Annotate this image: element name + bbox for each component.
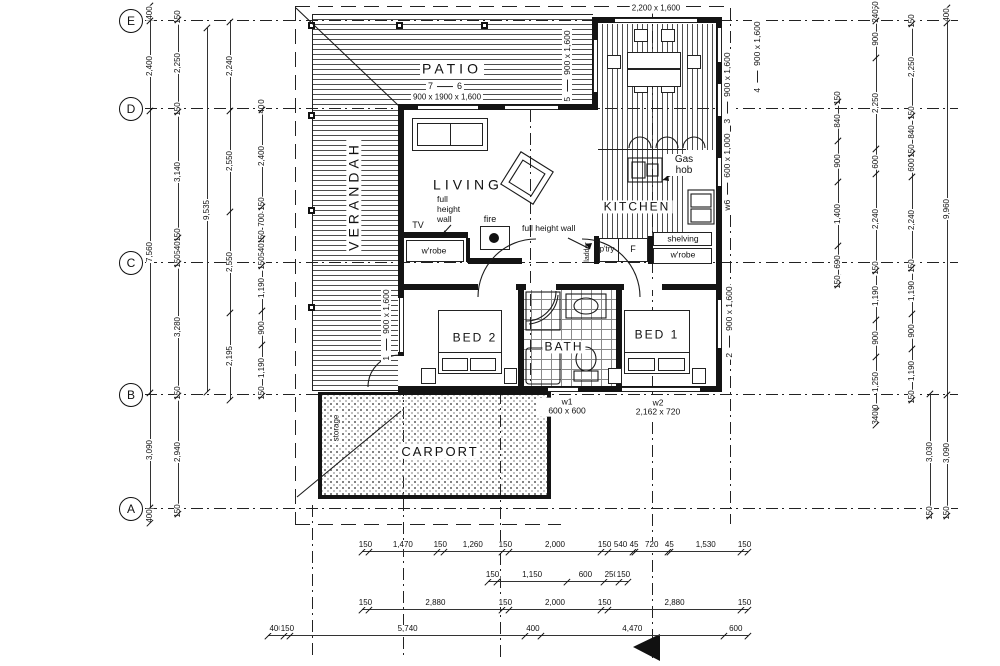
dim-segment: 2,195 (220, 313, 240, 400)
dim-label: 1,190 (908, 280, 916, 302)
dim-label: 2,880 (424, 599, 446, 607)
dining-chair (634, 29, 648, 42)
patio-door-no-6: 6 (457, 82, 462, 92)
window-2-glazing (717, 300, 722, 348)
dim-label: 7,560 (146, 241, 154, 263)
bed2-blanket-line (438, 352, 502, 353)
sink-bench (688, 190, 714, 224)
dim-label: 150 (258, 385, 266, 400)
dim-segment: 150 (741, 596, 748, 610)
dim-segment: 1,530 (670, 538, 741, 552)
window-top-glazing (615, 18, 697, 23)
dim-label: 2,400 (146, 55, 154, 77)
patio-door-glazing (418, 105, 478, 110)
patio-label: PATIO (420, 61, 484, 76)
dim-label: 540 (613, 541, 628, 549)
dim-label: 700 (258, 213, 266, 228)
bed2-pillow (442, 358, 468, 371)
ref-line-v4 (530, 110, 531, 390)
dim-column-right-3: 1502,2501508401506002,2401501,1909001,19… (902, 18, 922, 400)
dim-label: 1,190 (908, 360, 916, 382)
dim-segment: 1,260 (444, 538, 502, 552)
dim-segment: 2,240 (220, 22, 240, 111)
dim-segment: 600 (567, 568, 604, 582)
window-w6-size: 600 x 1,000 (722, 133, 732, 177)
dim-label: 900 (834, 154, 842, 169)
bath-door-opening (526, 284, 556, 290)
patio-door-no-7: 7 (428, 82, 433, 92)
grid-label-B: B (127, 388, 135, 402)
dim-label: 600 (908, 158, 916, 173)
grid-line-E (145, 20, 958, 21)
dim-segment: 2,240 (866, 174, 886, 265)
deck-post (308, 304, 315, 311)
dim-segment: 2,250 (168, 20, 188, 106)
dim-label: 720 (644, 541, 659, 549)
sink-bowl-2 (691, 209, 711, 222)
dim-label: 2,250 (174, 52, 182, 74)
dining-chair (607, 55, 621, 69)
dim-label: 900 (258, 320, 266, 335)
label-dash (437, 86, 453, 87)
dim-label: 150 (737, 599, 752, 607)
window-north-glazing (505, 105, 558, 110)
label-dash (386, 339, 387, 351)
grid-label-A: A (127, 502, 135, 516)
window-4-size: 900 x 1,600 (752, 21, 762, 65)
dim-label: 600 (872, 154, 880, 169)
dim-segment: 3,090 (140, 393, 160, 508)
dim-segment: 3,140 (168, 112, 188, 232)
window-w2-label: w2 2,162 x 720 (621, 399, 695, 418)
wall-bedrooms-north (398, 284, 722, 290)
dim-label: 3,140 (174, 161, 182, 183)
dim-label: 2,240 (226, 55, 234, 77)
dim-segment: 7,560 (140, 111, 160, 393)
entry-door-opening (398, 356, 404, 386)
dim-column-left-5: 150402,4001507001505401501,1909001,19015… (252, 103, 272, 396)
full-height-wall-left-label: full height wall (437, 195, 471, 224)
grid-line-A (145, 508, 958, 509)
window-1-number: 1 (381, 356, 391, 361)
window-w1-glazing (548, 387, 578, 392)
window-5-label: 5900 x 1,600 (562, 28, 572, 103)
dim-segment: 150 (168, 508, 188, 514)
window-3-number: 3 (722, 119, 732, 124)
dim-segment: 150 (502, 538, 509, 552)
carport-label: CARPORT (399, 445, 480, 459)
bed2-label: BED 2 (453, 331, 498, 344)
window-1-label: 1900 x 1,600 (381, 287, 391, 362)
dim-label: 1,190 (872, 285, 880, 307)
dim-label: 900 (908, 324, 916, 339)
dim-segment: 2,400 (140, 21, 160, 111)
dim-label: 400 (525, 625, 540, 633)
dim-segment: 2,550 (220, 111, 240, 212)
dim-label: 400 (146, 508, 154, 523)
window-5-number: 5 (562, 97, 572, 102)
dim-label: 2,880 (664, 599, 686, 607)
dim-label: 150 (174, 503, 182, 518)
dim-segment: 150 (362, 538, 369, 552)
dining-table-top (627, 52, 681, 69)
dim-label: 150 (737, 541, 752, 549)
dining-floor (598, 24, 716, 150)
fireplace-box (480, 226, 510, 250)
dim-column-right-2: 1502409002,2506002,2401501,1909001,25090… (866, 5, 886, 425)
dim-segment: 1,190 (866, 271, 886, 320)
dim-segment: 1,190 (902, 349, 922, 395)
dim-segment: 2,000 (509, 596, 601, 610)
kitchen-label: KITCHEN (602, 200, 673, 213)
dim-segment: 3,280 (168, 264, 188, 390)
bed2-side-table (421, 368, 436, 384)
bed1-pillow (658, 358, 685, 371)
sink-bowl-1 (691, 194, 711, 207)
dim-segment: 150 (601, 538, 608, 552)
floor-plan-canvas: E D C B A (0, 0, 1000, 666)
dim-label: 9,960 (943, 198, 951, 220)
dim-segment: 2,550 (220, 212, 240, 313)
dim-label: 150 (834, 274, 842, 289)
grid-label-D: D (127, 102, 136, 116)
dim-segment: 3,090 (937, 395, 957, 510)
dim-label: 1,150 (521, 571, 543, 579)
dim-row-bottom-2: 1501,150600250150 (488, 568, 628, 582)
dim-label: 2,250 (872, 92, 880, 114)
bath-label: BATH (542, 340, 585, 353)
dim-segment: 4,470 (541, 622, 723, 636)
dim-label: 3,090 (146, 439, 154, 461)
label-dash (567, 80, 568, 92)
dim-segment: 150 (741, 538, 748, 552)
dim-segment: 150 (488, 568, 497, 582)
dim-label: 3,280 (174, 316, 182, 338)
dim-label: 5,740 (397, 625, 419, 633)
dim-segment: 2,880 (608, 596, 741, 610)
dim-segment: 2,250 (866, 58, 886, 150)
dim-column-left-1: 4002,4007,5603,090400 (140, 6, 160, 523)
wall-tv-full-height (404, 232, 468, 238)
dim-label: 1,250 (872, 371, 880, 393)
dim-segment: 600 (866, 149, 886, 173)
window-3-size: 900 x 1,600 (722, 52, 732, 96)
roof-outline-left (295, 6, 296, 525)
dim-column-left-3: 9,535 (197, 28, 217, 392)
dim-label: 2,940 (174, 441, 182, 463)
window-5-size: 900 x 1,600 (562, 30, 572, 74)
window-w6-label: w6600 x 1,000 (722, 131, 732, 212)
dim-column-left-2: 1502,2501503,1401505401503,2801502,94015… (168, 14, 188, 514)
dim-segment: 400 (525, 622, 541, 636)
dim-label: 2,550 (226, 251, 234, 273)
window-w1-label: w1 600 x 600 (537, 398, 597, 417)
window-w1-size: 600 x 600 (548, 406, 585, 416)
window-w2-glazing (622, 387, 700, 392)
bed2-side-table (504, 368, 517, 384)
window-w6-number: w6 (722, 200, 732, 211)
dim-label: 600 (578, 571, 593, 579)
bed1-pillow (628, 358, 655, 371)
dim-label: 1,530 (695, 541, 717, 549)
dim-label: 2,250 (908, 56, 916, 78)
dim-label: 2,400 (258, 145, 266, 167)
dim-segment: 9,535 (197, 28, 217, 392)
dim-label: 690 (834, 255, 842, 270)
sofa-divider (450, 123, 451, 146)
dim-label: 340 (872, 410, 880, 425)
kitchen-bench-front (598, 149, 686, 150)
dim-label: 3,030 (926, 441, 934, 463)
dim-segment: 1,470 (369, 538, 437, 552)
dim-segment: 1,190 (252, 266, 272, 311)
window-4-number: 4 (752, 88, 762, 93)
dim-row-bottom-1: 1501,4701501,2601502,00015054045720451,5… (362, 538, 748, 552)
dim-label: 150 (926, 505, 934, 520)
grid-label-C: C (127, 256, 136, 270)
label-dash (757, 71, 758, 83)
living-label: LIVING (433, 177, 503, 192)
dim-label: 2,000 (544, 541, 566, 549)
dim-segment: 2,400 (252, 110, 272, 201)
label-dash (729, 336, 730, 348)
dim-segment: 9,960 (937, 23, 957, 395)
wrobe-right-label: w'robe (671, 250, 696, 259)
window-5-glazing (593, 40, 598, 92)
dim-label: 840 (834, 114, 842, 129)
bed2-door-opening (478, 284, 516, 290)
north-arrow-icon (633, 634, 660, 661)
patio-door-size-label: 900 x 1900 x 1,600 (411, 94, 483, 103)
fridge-label: F (630, 245, 636, 255)
dim-label: 150 (943, 506, 951, 521)
dining-table-bottom (627, 69, 681, 87)
dim-label: 2,195 (226, 345, 234, 367)
label-dash (727, 102, 728, 114)
window-1-size: 900 x 1,600 (381, 289, 391, 333)
dim-segment: 600 (724, 622, 748, 636)
shelving-label: shelving (667, 234, 698, 243)
patio-door-numbers: 7 6 (426, 82, 464, 92)
dim-label: 150 (616, 571, 631, 579)
dim-label: 2,550 (226, 150, 234, 172)
dim-label: 2,240 (908, 209, 916, 231)
dim-label: 9,535 (203, 199, 211, 221)
dim-segment: 150 (601, 596, 608, 610)
dim-segment: 150 (902, 394, 922, 400)
dim-label: 2,000 (544, 599, 566, 607)
deck-post (308, 207, 315, 214)
bed1-label: BED 1 (635, 328, 680, 341)
pantry-fridge-divider (618, 238, 619, 262)
dim-label: 900 (872, 330, 880, 345)
dining-chair (661, 29, 675, 42)
dim-segment: 2,880 (369, 596, 502, 610)
dim-segment: 900 (866, 320, 886, 357)
dim-label: 1,190 (258, 277, 266, 299)
dim-segment: 1,190 (252, 345, 272, 390)
wall-hearth (468, 258, 522, 264)
dim-segment: 900 (252, 311, 272, 345)
dim-segment: 900 (866, 21, 886, 58)
dim-segment: 2,250 (902, 24, 922, 110)
dim-label: 900 (872, 32, 880, 47)
dim-label: 150 (908, 389, 916, 404)
bed1-blanket-line (624, 352, 690, 353)
dining-chair (687, 55, 701, 69)
dim-segment: 600 (902, 154, 922, 177)
roof-outline-bottom (295, 524, 561, 525)
dim-segment: 2,940 (168, 396, 188, 509)
dim-segment: 150 (502, 596, 509, 610)
window-4-label: 4900 x 1,600 (752, 19, 762, 94)
pantry-label: p'try (600, 246, 615, 255)
dim-segment: 150 (619, 568, 628, 582)
label-dash (727, 183, 728, 195)
dim-label: 840 (908, 124, 916, 139)
gas-hob-label: Gas hob (666, 154, 702, 176)
bed1-door-opening (624, 284, 662, 290)
dim-segment: 5,740 (290, 622, 524, 636)
dim-segment: 1,250 (866, 357, 886, 408)
dim-label: 1,190 (258, 357, 266, 379)
fire-label: fire (482, 215, 499, 225)
storage-label: storage (333, 413, 342, 444)
dim-label: 3,090 (943, 442, 951, 464)
dim-segment: 150 (252, 390, 272, 396)
dim-label: 1,470 (392, 541, 414, 549)
dim-segment: 400 (140, 508, 160, 523)
dim-segment: 150 (437, 538, 444, 552)
dim-segment: 150 (362, 596, 369, 610)
bed1-side-table (692, 368, 706, 384)
dim-label: 600 (728, 625, 743, 633)
dim-segment: 1,400 (828, 182, 848, 246)
dim-column-right-1: 1508409001,400690150 (828, 95, 848, 285)
bed2-pillow (470, 358, 496, 371)
window-2-label: 2900 x 1,600 (724, 284, 734, 359)
wall-bath-west (518, 284, 524, 392)
wrobe-left-label: w'robe (422, 246, 447, 255)
dim-segment: 900 (828, 141, 848, 182)
window-2-size: 900 x 1,600 (724, 286, 734, 330)
deck-post (308, 112, 315, 119)
dim-segment: 150 (828, 278, 848, 285)
grid-label-E: E (127, 14, 135, 28)
dim-segment: 150 (937, 510, 957, 516)
dim-segment: 340 (866, 411, 886, 425)
window-w2-size: 2,162 x 720 (636, 407, 680, 417)
dim-column-left-4: 2,2402,5502,5502,195 (220, 22, 240, 400)
dim-segment: 900 (902, 314, 922, 349)
window-1-glazing (399, 298, 404, 352)
window-3-label: 3900 x 1,600 (722, 50, 732, 125)
bed1-side-table (608, 368, 622, 384)
dim-label: 1,400 (834, 203, 842, 225)
verandah-label: VERANDAH (346, 139, 361, 253)
dim-label: 2,240 (872, 208, 880, 230)
top-window-size-label: 2,200 x 1,600 (630, 5, 682, 14)
dim-segment: 840 (828, 102, 848, 141)
deck-post (481, 22, 488, 29)
dim-segment: 1,150 (497, 568, 567, 582)
dim-segment: 2,240 (902, 177, 922, 263)
dim-segment: 1,190 (902, 268, 922, 314)
dim-segment: 2,000 (509, 538, 601, 552)
full-height-wall-right-label: full height wall (522, 224, 578, 234)
dim-label: 4,470 (621, 625, 643, 633)
armchair (501, 152, 553, 204)
dim-column-right-4: 4009,9603,090150 (937, 8, 957, 516)
deck-post (308, 22, 315, 29)
deck-post (396, 22, 403, 29)
window-2-number: 2 (724, 353, 734, 358)
dim-label: 1,260 (462, 541, 484, 549)
ladder-label: ladder (584, 242, 592, 261)
dim-row-bottom-4: 4001505,7404004,470600 (268, 622, 748, 636)
dim-row-bottom-3: 1502,8801502,0001502,880150 (362, 596, 748, 610)
tv-label: TV (412, 221, 424, 231)
